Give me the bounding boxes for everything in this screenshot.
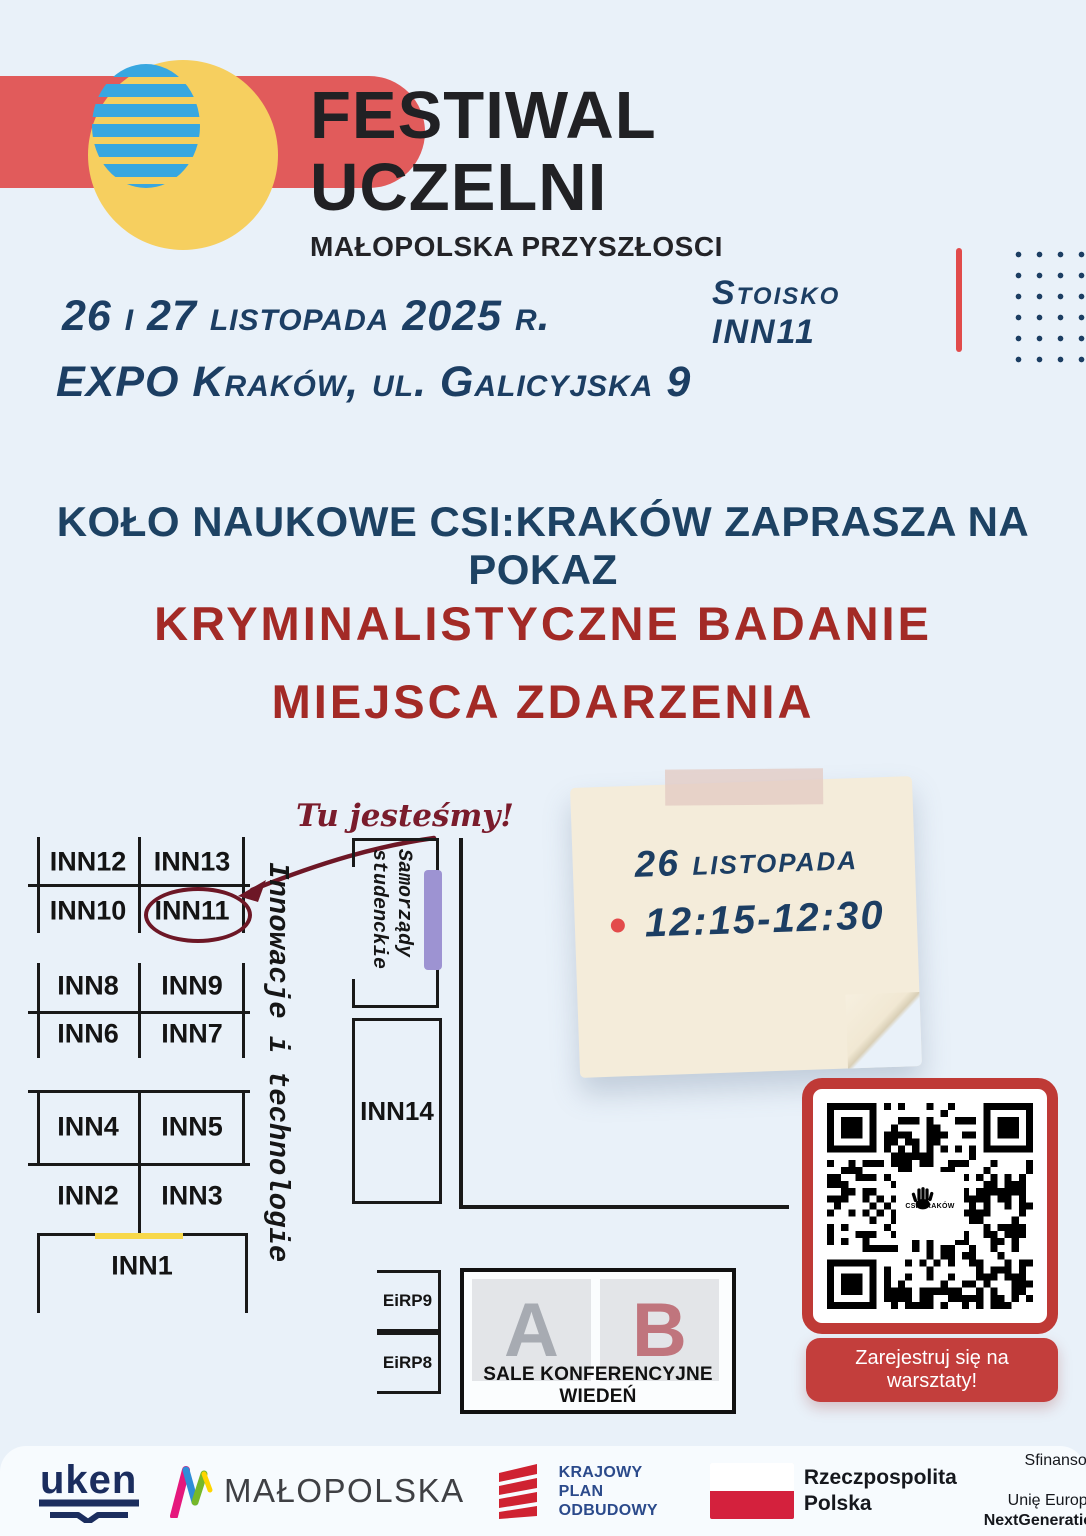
booth-inn4: INN4 bbox=[57, 1112, 119, 1143]
booth-eirp9: EiRP9 bbox=[383, 1291, 432, 1311]
note-time: 12:15-12:30 bbox=[644, 893, 885, 946]
eu-funding-text: Sfinansowane przez Unię Europejską NextG… bbox=[983, 1451, 1086, 1531]
tape-decoration bbox=[665, 768, 823, 805]
red-divider-line bbox=[956, 248, 962, 352]
show-title-line1: KRYMINALISTYCZNE BADANIE bbox=[0, 596, 1086, 651]
map-line bbox=[352, 841, 355, 867]
festival-subtitle: MAŁOPOLSKA PRZYSZŁOSCI bbox=[310, 233, 723, 261]
malopolska-logo: MAŁOPOLSKA bbox=[170, 1464, 465, 1518]
kpo-logo: KRAJOWY PLAN ODBUDOWY bbox=[491, 1461, 658, 1521]
booth-inn1: INN1 bbox=[111, 1251, 173, 1282]
map-line bbox=[28, 884, 250, 887]
svg-text:uken: uken bbox=[40, 1459, 137, 1502]
map-wall-line bbox=[459, 838, 463, 1208]
note-date: 26 listopada bbox=[634, 834, 915, 886]
zone-label-student-councils: Samorządy studenckie bbox=[366, 849, 416, 969]
eu-funding-logo: Sfinansowane przez Unię Europejską NextG… bbox=[983, 1451, 1086, 1531]
booth-inn13: INN13 bbox=[154, 847, 231, 878]
map-line bbox=[245, 1233, 248, 1313]
note-time-row: 12:15-12:30 bbox=[610, 892, 917, 948]
kpo-logo-text: KRAJOWY PLAN ODBUDOWY bbox=[559, 1463, 658, 1520]
event-venue: EXPO Kraków, ul. Galicyjska 9 bbox=[56, 358, 691, 407]
poland-logo-text: Rzeczpospolita Polska bbox=[804, 1465, 957, 1517]
conference-halls-box: A B SALE KONFERENCYJNE WIEDEŃ bbox=[460, 1268, 736, 1414]
map-line bbox=[352, 979, 355, 1005]
map-wall-line bbox=[459, 1205, 789, 1209]
footer-logo-bar: uken MAŁOPOLSKA bbox=[0, 1446, 1086, 1536]
malopolska-logo-text: MAŁOPOLSKA bbox=[224, 1472, 465, 1510]
register-button[interactable]: Zarejestruj się na warsztaty! bbox=[806, 1338, 1058, 1402]
map-line bbox=[28, 1011, 250, 1014]
stand-number: Stoisko INN11 bbox=[712, 274, 950, 352]
festival-title-line2: UCZELNI bbox=[310, 154, 723, 221]
booth-inn7: INN7 bbox=[161, 1019, 223, 1050]
booth-eirp9-box: EiRP9 bbox=[377, 1270, 441, 1332]
booth-inn5: INN5 bbox=[161, 1112, 223, 1143]
map-line bbox=[242, 1090, 245, 1166]
conference-halls-label: SALE KONFERENCYJNE WIEDEŃ bbox=[464, 1364, 732, 1408]
map-line bbox=[37, 1233, 40, 1313]
logo-blue-striped-globe-icon bbox=[92, 64, 200, 188]
booth-inn6: INN6 bbox=[57, 1019, 119, 1050]
schedule-sticky-note: 26 listopada 12:15-12:30 bbox=[570, 776, 922, 1078]
malopolska-mountain-icon bbox=[170, 1464, 214, 1518]
booth-inn3: INN3 bbox=[161, 1181, 223, 1212]
map-yellow-segment bbox=[95, 1233, 183, 1239]
event-poster: FESTIWAL UCZELNI MAŁOPOLSKA PRZYSZŁOSCI … bbox=[0, 0, 1086, 1536]
booth-inn14: INN14 bbox=[360, 1096, 434, 1127]
booth-eirp8: EiRP8 bbox=[383, 1353, 432, 1373]
qr-code[interactable]: CSI:KRAKÓW bbox=[802, 1078, 1058, 1334]
poland-flag-icon bbox=[710, 1463, 794, 1519]
festival-title-line1: FESTIWAL bbox=[310, 82, 723, 149]
uken-logo-icon: uken bbox=[34, 1459, 144, 1523]
festival-title-block: FESTIWAL UCZELNI MAŁOPOLSKA PRZYSZŁOSCI bbox=[310, 82, 723, 261]
booth-inn8: INN8 bbox=[57, 971, 119, 1002]
invitation-headline: KOŁO NAUKOWE CSI:KRAKÓW ZAPRASZA NA POKA… bbox=[0, 498, 1086, 594]
booth-inn9: INN9 bbox=[161, 971, 223, 1002]
bullet-dot-icon bbox=[611, 918, 625, 932]
poland-logo: Rzeczpospolita Polska bbox=[710, 1463, 957, 1519]
purple-zone-bar bbox=[424, 870, 442, 970]
uken-logo: uken bbox=[34, 1459, 144, 1523]
decorative-dot-grid bbox=[1004, 240, 1086, 364]
qr-center-logo: CSI:KRAKÓW bbox=[896, 1172, 964, 1240]
map-line bbox=[37, 1090, 40, 1166]
kpo-logo-icon bbox=[491, 1461, 549, 1521]
handprint-icon bbox=[910, 1186, 936, 1212]
booth-inn2: INN2 bbox=[57, 1181, 119, 1212]
booth-eirp8-box: EiRP8 bbox=[377, 1332, 441, 1394]
booth-inn12: INN12 bbox=[50, 847, 127, 878]
zone-label-innovations: Innowacje i technologie bbox=[252, 862, 296, 1254]
booth-inn10: INN10 bbox=[50, 896, 127, 927]
booth-inn14-box: INN14 bbox=[352, 1018, 442, 1204]
map-line bbox=[28, 1163, 250, 1166]
note-page-curl bbox=[845, 992, 922, 1069]
you-are-here-label: Tu jesteśmy! bbox=[296, 798, 514, 834]
show-title-line2: MIEJSCA ZDARZENIA bbox=[0, 674, 1086, 729]
event-date: 26 i 27 listopada 2025 r. bbox=[62, 292, 551, 341]
